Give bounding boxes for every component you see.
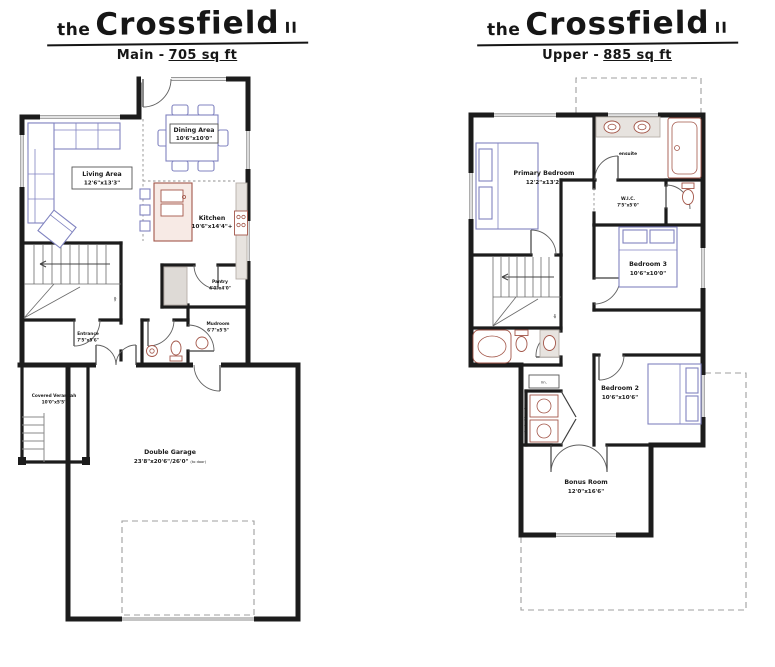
svg-text:7'5"x5'6": 7'5"x5'6" [77,338,99,344]
svg-text:Primary Bedroom: Primary Bedroom [514,170,575,177]
garage-dashed-outline [122,521,254,615]
plan-upper: the Crossfield II Upper -885 sq ft [442,6,772,625]
svg-text:lin.: lin. [541,381,547,385]
svg-text:Entrance: Entrance [77,331,99,337]
toilet-room-fixture [682,183,694,205]
verandah-post [18,457,26,465]
plan-main-title: the Crossfield II [12,6,342,45]
title-name: Crossfield [95,5,280,43]
title-name: Crossfield [525,5,710,43]
svg-text:4'0"x4'0": 4'0"x4'0" [209,286,231,292]
room-label-bedroom2: Bedroom 2 10'6"x10'6" [601,385,639,401]
svg-text:Double Garage: Double Garage [144,449,196,456]
svg-text:12'6"x13'3": 12'6"x13'3" [84,181,120,187]
svg-text:Covered Verandah: Covered Verandah [32,393,77,399]
svg-text:Kitchen: Kitchen [199,215,226,222]
svg-text:W.I.C.: W.I.C. [621,196,635,202]
svg-text:Living Area: Living Area [82,171,121,178]
room-label-bonus: Bonus Room 12'0"x16'6" [564,479,607,495]
svg-text:10'6"x10'0": 10'6"x10'0" [630,271,666,277]
main-bath-fixtures [473,330,559,363]
svg-text:10'6"x10'6": 10'6"x10'6" [602,395,638,401]
room-label-mudroom: Mudroom 6'7"x5'5" [207,321,230,334]
room-label-ensuite: ensuite [619,151,637,157]
wall-verandah [22,365,88,462]
svg-text:Dining Area: Dining Area [174,127,215,134]
svg-text:Pantry: Pantry [212,279,228,285]
stairs-up-note: up [113,296,117,301]
kitchen-stools [140,189,150,231]
svg-text:10'6"x10'0": 10'6"x10'0" [176,136,212,142]
svg-text:12'2"x13'2": 12'2"x13'2" [526,180,562,186]
room-label-living: Living Area 12'6"x13'3" [72,167,132,189]
room-label-dining: Dining Area 10'6"x10'0" [170,124,218,143]
stairs-upper: dn [493,257,561,326]
linen-closet: lin. [529,375,559,388]
svg-text:23'8"x20'6"/26'0"(to door): 23'8"x20'6"/26'0"(to door) [134,459,207,465]
kitchen-island [154,183,192,241]
bedroom3-bed [619,227,677,287]
bedroom2-bed [648,364,701,424]
title-suffix: II [284,19,297,37]
plan-main-subtitle: Main -705 sq ft [12,48,342,63]
stairs-main: up [24,245,121,318]
svg-text:12'0"x16'6": 12'0"x16'6" [568,489,604,495]
floorplan-upper-drawing: ensuite W.I.C. 7'5"x5'0" Primary Bedroom… [456,73,756,625]
room-label-wic: W.I.C. 7'5"x5'0" [617,196,639,209]
title-suffix: II [714,19,727,37]
subtitle-area: 705 sq ft [169,48,238,63]
subtitle-label: Upper - [542,48,599,63]
laundry-stack: stacked laundry [524,395,559,442]
verandah-post [82,457,90,465]
kitchen-stove [235,211,248,235]
plan-main: the Crossfield II Main -705 sq ft [12,6,342,625]
room-label-pantry: Pantry 4'0"x4'0" [209,279,231,292]
svg-text:6'7"x5'5": 6'7"x5'5" [207,328,229,334]
roof-dashed-top [576,78,701,113]
room-label-garage: Double Garage 23'8"x20'6"/26'0"(to door) [134,449,207,465]
title-prefix: the [487,20,520,40]
room-label-kitchen: Kitchen 10'6"x14'4"+ [192,215,233,230]
subtitle-label: Main - [117,48,165,63]
svg-text:10'0"x5'5": 10'0"x5'5" [42,400,67,406]
svg-text:Bonus Room: Bonus Room [564,479,607,486]
svg-text:10'6"x14'4"+: 10'6"x14'4"+ [192,224,233,230]
svg-text:Bedroom 3: Bedroom 3 [629,261,667,268]
room-label-entrance: Entrance 7'5"x5'6" [77,331,99,344]
ensuite-vanity [596,117,660,137]
kitchen-closet [164,267,187,305]
svg-text:Mudroom: Mudroom [207,321,230,327]
powder-room-fixtures [147,341,183,361]
laundry-label: stacked laundry [524,403,528,433]
title-prefix: the [57,20,90,40]
ensuite-shower [668,118,701,178]
plan-upper-title: the Crossfield II [442,6,772,45]
svg-text:Bedroom 2: Bedroom 2 [601,385,639,392]
primary-bed [476,143,538,229]
subtitle-area: 885 sq ft [603,48,672,63]
floorplan-sheet: the Crossfield II Main -705 sq ft [0,0,775,667]
floorplan-main-drawing: up [12,73,332,625]
verandah-steps [22,413,44,462]
wall-garage [68,365,298,619]
plan-upper-subtitle: Upper -885 sq ft [442,48,772,63]
mudroom-sink [196,337,208,349]
stairs-dn-note: dn [553,313,557,318]
svg-text:7'5"x5'0": 7'5"x5'0" [617,203,639,209]
